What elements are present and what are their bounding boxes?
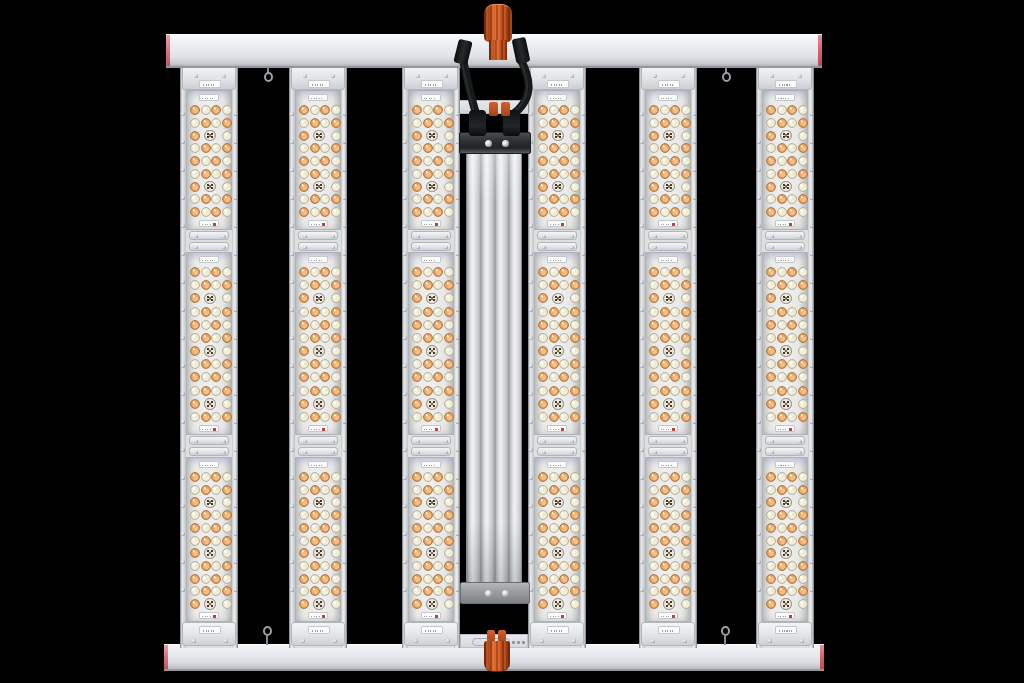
led-bar-segment — [762, 252, 808, 435]
led-diode-amber — [331, 169, 341, 179]
led-diode-white — [299, 169, 309, 179]
led-diode-amber — [570, 485, 580, 495]
led-diode-amber — [766, 574, 776, 584]
rail-screw — [640, 168, 644, 172]
led-diode-white — [222, 346, 232, 356]
rail-screw — [693, 280, 697, 284]
led-diode-amber — [331, 536, 341, 546]
led-diode-white — [310, 207, 320, 217]
led-diode-amber — [222, 359, 232, 369]
rail-screw — [290, 280, 294, 284]
spec-label — [199, 626, 221, 634]
rail-screw — [403, 224, 407, 228]
led-diode-amber — [798, 333, 808, 343]
led-diode-amber — [549, 280, 559, 290]
led-diode-amber — [766, 399, 776, 409]
led-diode-amber — [660, 194, 670, 204]
led-diode-amber — [649, 472, 659, 482]
led-diode-white — [310, 523, 320, 533]
rail-screw — [290, 112, 294, 116]
segment-junction-cap — [765, 242, 805, 251]
led-diode-amber — [211, 320, 221, 330]
rail-screw — [693, 168, 697, 172]
led-diode-white — [670, 536, 680, 546]
rail-screw — [757, 336, 761, 340]
led-diode-white — [681, 523, 691, 533]
screw — [194, 451, 198, 455]
led-diode-amber — [570, 169, 580, 179]
led-diode-white — [538, 307, 548, 317]
spec-label — [775, 425, 795, 432]
rail-screw — [693, 140, 697, 144]
led-diode-white — [538, 359, 548, 369]
screw — [540, 639, 544, 643]
led-diode-white — [412, 536, 422, 546]
hanger-clip-top-neck — [489, 40, 507, 60]
led-diode-amber — [423, 280, 433, 290]
screw — [770, 74, 774, 78]
led-diode-white — [222, 267, 232, 277]
led-diode-amber — [320, 574, 330, 584]
led-diode-white — [766, 386, 776, 396]
led-diode-amber — [201, 118, 211, 128]
led-diode-white — [310, 156, 320, 166]
rail-screw — [693, 476, 697, 480]
led-diode-white — [299, 386, 309, 396]
rail-screw — [640, 560, 644, 564]
led-diode-white — [549, 574, 559, 584]
led-diode-amber — [331, 412, 341, 422]
led-diode-amber — [444, 536, 454, 546]
rail-screw — [529, 196, 533, 200]
rail-screw — [181, 532, 185, 536]
screw — [681, 246, 685, 250]
label-logo — [561, 428, 564, 431]
screw — [570, 74, 574, 78]
screw — [194, 246, 198, 250]
led-diode-white — [670, 333, 680, 343]
spec-label — [421, 461, 441, 468]
screw — [800, 639, 804, 643]
rail-screw — [456, 224, 460, 228]
led-diode-amber — [433, 320, 443, 330]
screw — [222, 74, 226, 78]
led-diode-white — [412, 586, 422, 596]
led-diode-white — [681, 372, 691, 382]
led-diode-white — [299, 307, 309, 317]
led-diode-white — [423, 207, 433, 217]
label-print — [203, 630, 216, 632]
screw — [653, 235, 657, 239]
led-diode-amber — [670, 207, 680, 217]
led-diode-white — [798, 320, 808, 330]
rail-screw — [181, 448, 185, 452]
led-diode-amber — [299, 131, 309, 141]
rail-screw — [757, 252, 761, 256]
rail-screw — [456, 252, 460, 256]
led-diode-white — [681, 105, 691, 115]
spec-label — [308, 94, 328, 101]
led-diode-white — [538, 143, 548, 153]
screw — [542, 451, 546, 455]
led-diode-white — [649, 536, 659, 546]
led-diode-white — [538, 280, 548, 290]
screw — [331, 246, 335, 250]
segment-junction-cap — [765, 447, 805, 456]
led-diode-amber — [777, 536, 787, 546]
label-logo — [322, 428, 325, 431]
led-diode-white — [201, 372, 211, 382]
led-diode-special — [780, 293, 792, 305]
led-diode-white — [190, 412, 200, 422]
led-diode-amber — [798, 359, 808, 369]
led-diode-white — [681, 267, 691, 277]
led-diode-amber — [787, 156, 797, 166]
led-diode-amber — [670, 320, 680, 330]
spec-label — [199, 80, 221, 88]
spec-label — [199, 461, 219, 468]
led-diode-amber — [549, 169, 559, 179]
led-diode-white — [660, 523, 670, 533]
led-diode-amber — [766, 548, 776, 558]
led-diode-white — [681, 346, 691, 356]
rail-screw — [290, 504, 294, 508]
rail-screw — [181, 308, 185, 312]
led-bar-segment — [186, 252, 232, 435]
led-diode-white — [777, 372, 787, 382]
led-diode-white — [320, 143, 330, 153]
led-diode-special — [552, 345, 564, 357]
led-diode-amber — [538, 523, 548, 533]
screw — [570, 451, 574, 455]
led-diode-white — [766, 118, 776, 128]
segment-junction-cap — [648, 231, 688, 240]
rail-screw — [757, 392, 761, 396]
led-diode-white — [211, 561, 221, 571]
led-diode-white — [798, 182, 808, 192]
spec-label — [308, 612, 328, 619]
led-diode-white — [570, 472, 580, 482]
led-diode-amber — [310, 194, 320, 204]
rail-screw — [343, 532, 347, 536]
led-diode-white — [331, 207, 341, 217]
screw — [444, 451, 448, 455]
rail-screw — [529, 308, 533, 312]
led-diode-white — [570, 346, 580, 356]
rail-screw — [640, 504, 644, 508]
screw — [444, 440, 448, 444]
led-diode-white — [570, 207, 580, 217]
led-diode-white — [559, 143, 569, 153]
led-diode-white — [660, 472, 670, 482]
spec-label — [308, 80, 330, 88]
led-diode-amber — [570, 561, 580, 571]
led-diode-white — [412, 359, 422, 369]
led-diode-special — [204, 547, 216, 559]
led-diode-white — [190, 586, 200, 596]
led-diode-special — [780, 497, 792, 509]
led-diode-amber — [423, 143, 433, 153]
rail-screw — [757, 532, 761, 536]
led-diode-amber — [423, 307, 433, 317]
bar-end-cap-bottom — [641, 622, 695, 646]
led-diode-white — [190, 194, 200, 204]
rail-screw — [456, 532, 460, 536]
rail-screw — [582, 280, 586, 284]
led-diode-special — [313, 547, 325, 559]
led-diode-white — [538, 412, 548, 422]
led-diode-white — [798, 293, 808, 303]
segment-junction-cap — [189, 231, 229, 240]
led-diode-amber — [320, 105, 330, 115]
led-diode-amber — [433, 472, 443, 482]
led-diode-white — [320, 485, 330, 495]
led-diode-amber — [190, 182, 200, 192]
led-diode-amber — [570, 536, 580, 546]
led-diode-white — [549, 472, 559, 482]
led-diode-white — [649, 586, 659, 596]
screw — [416, 451, 420, 455]
led-diode-amber — [766, 182, 776, 192]
led-diode-white — [310, 320, 320, 330]
led-diode-white — [538, 485, 548, 495]
rail-screw — [640, 224, 644, 228]
led-diode-amber — [559, 372, 569, 382]
rail-screw — [640, 280, 644, 284]
led-diode-amber — [190, 472, 200, 482]
led-diode-white — [310, 372, 320, 382]
rail-screw — [403, 168, 407, 172]
led-diode-amber — [798, 386, 808, 396]
screw — [331, 440, 335, 444]
led-diode-white — [433, 586, 443, 596]
rail-screw — [343, 476, 347, 480]
led-diode-amber — [798, 412, 808, 422]
led-diode-amber — [222, 536, 232, 546]
led-diode-white — [777, 523, 787, 533]
led-diode-white — [423, 267, 433, 277]
rail-screw — [640, 420, 644, 424]
led-diode-white — [190, 561, 200, 571]
led-diode-amber — [201, 536, 211, 546]
label-print — [779, 630, 792, 632]
spec-label — [199, 220, 219, 227]
led-diode-white — [681, 472, 691, 482]
rail-screw — [529, 448, 533, 452]
rail-screw — [693, 420, 697, 424]
rail-screw — [810, 112, 814, 116]
rail-screw — [403, 308, 407, 312]
led-diode-amber — [222, 280, 232, 290]
rail-screw — [403, 420, 407, 424]
rail-screw — [640, 308, 644, 312]
rail-screw — [757, 140, 761, 144]
led-diode-amber — [549, 510, 559, 520]
led-diode-amber — [190, 346, 200, 356]
led-diode-amber — [559, 156, 569, 166]
led-diode-amber — [798, 118, 808, 128]
led-diode-amber — [299, 599, 309, 609]
led-diode-amber — [670, 156, 680, 166]
led-diode-white — [423, 472, 433, 482]
driver-body — [466, 152, 522, 584]
screw — [222, 440, 226, 444]
led-diode-amber — [798, 561, 808, 571]
led-diode-amber — [444, 485, 454, 495]
spec-label — [308, 220, 328, 227]
rail-screw — [290, 364, 294, 368]
led-diode-amber — [423, 386, 433, 396]
hanger-clip-bottom — [484, 641, 510, 672]
led-diode-white — [299, 118, 309, 128]
led-diode-amber — [190, 131, 200, 141]
led-diode-white — [201, 207, 211, 217]
rail-screw — [640, 196, 644, 200]
frame-end-cap-left — [166, 35, 170, 66]
led-diode-white — [320, 510, 330, 520]
led-diode-white — [433, 307, 443, 317]
led-diode-amber — [310, 510, 320, 520]
led-diode-amber — [190, 523, 200, 533]
screw — [333, 639, 337, 643]
screw — [770, 235, 774, 239]
led-diode-amber — [331, 143, 341, 153]
led-diode-white — [412, 386, 422, 396]
screw — [651, 639, 655, 643]
led-diode-white — [570, 156, 580, 166]
led-diode-special — [204, 345, 216, 357]
led-diode-white — [559, 169, 569, 179]
led-diode-white — [559, 280, 569, 290]
led-diode-white — [412, 169, 422, 179]
rail-screw — [403, 112, 407, 116]
led-diode-white — [681, 574, 691, 584]
led-diode-amber — [222, 386, 232, 396]
segment-junction-cap — [537, 242, 577, 251]
led-diode-amber — [549, 386, 559, 396]
led-diode-white — [412, 307, 422, 317]
led-diode-white — [670, 143, 680, 153]
led-diode-amber — [660, 280, 670, 290]
segment-junction-cap — [648, 242, 688, 251]
segment-junction-cap — [648, 436, 688, 445]
spec-label — [308, 626, 330, 634]
rail-screw — [529, 560, 533, 564]
led-diode-amber — [570, 510, 580, 520]
led-diode-amber — [299, 267, 309, 277]
rail-screw — [810, 504, 814, 508]
led-diode-white — [444, 574, 454, 584]
led-diode-white — [787, 561, 797, 571]
rail-screw — [403, 560, 407, 564]
led-diode-white — [433, 169, 443, 179]
led-diode-amber — [412, 182, 422, 192]
label-logo — [213, 615, 216, 618]
rail-screw — [456, 392, 460, 396]
screw — [303, 451, 307, 455]
led-diode-amber — [299, 472, 309, 482]
led-diode-white — [444, 293, 454, 303]
led-diode-white — [787, 510, 797, 520]
screw — [768, 639, 772, 643]
led-diode-amber — [559, 105, 569, 115]
led-diode-amber — [310, 333, 320, 343]
led-diode-white — [211, 194, 221, 204]
led-diode-amber — [538, 346, 548, 356]
led-diode-white — [299, 586, 309, 596]
segment-junction-cap — [411, 436, 451, 445]
led-diode-amber — [299, 156, 309, 166]
led-diode-amber — [444, 386, 454, 396]
led-diode-amber — [538, 320, 548, 330]
rail-screw — [343, 504, 347, 508]
led-diode-white — [660, 372, 670, 382]
led-diode-amber — [211, 523, 221, 533]
led-diode-white — [412, 333, 422, 343]
rail-screw — [181, 336, 185, 340]
rail-screw — [640, 364, 644, 368]
led-diode-amber — [433, 156, 443, 166]
led-diode-amber — [766, 293, 776, 303]
led-diode-amber — [649, 293, 659, 303]
led-diode-amber — [201, 169, 211, 179]
segment-junction-cap — [298, 231, 338, 240]
led-diode-amber — [320, 267, 330, 277]
rail-screw — [343, 252, 347, 256]
led-diode-white — [649, 280, 659, 290]
label-print — [778, 260, 789, 262]
spec-label — [547, 612, 567, 619]
rail-screw — [181, 560, 185, 564]
label-print — [778, 465, 789, 467]
led-diode-amber — [681, 386, 691, 396]
rail-screw — [343, 168, 347, 172]
led-diode-white — [559, 386, 569, 396]
screw — [301, 639, 305, 643]
led-diode-white — [211, 280, 221, 290]
led-diode-amber — [538, 472, 548, 482]
led-diode-amber — [310, 143, 320, 153]
led-diode-amber — [310, 536, 320, 546]
screw — [570, 235, 574, 239]
rail-screw — [403, 448, 407, 452]
led-diode-amber — [310, 485, 320, 495]
led-diode-amber — [299, 497, 309, 507]
led-diode-white — [559, 307, 569, 317]
rail-screw — [343, 392, 347, 396]
led-diode-white — [201, 105, 211, 115]
screw — [653, 74, 657, 78]
led-diode-white — [444, 267, 454, 277]
led-diode-white — [538, 333, 548, 343]
led-diode-amber — [649, 207, 659, 217]
screw — [798, 451, 802, 455]
rail-screw — [640, 140, 644, 144]
rail-screw — [582, 168, 586, 172]
led-bar-segment — [408, 457, 454, 622]
led-diode-amber — [299, 207, 309, 217]
led-diode-amber — [787, 267, 797, 277]
led-diode-white — [222, 574, 232, 584]
rail-screw — [234, 140, 238, 144]
rail-screw — [456, 420, 460, 424]
led-diode-amber — [444, 586, 454, 596]
led-diode-special — [552, 598, 564, 610]
led-diode-amber — [412, 293, 422, 303]
rail-screw — [529, 336, 533, 340]
spec-label — [547, 461, 567, 468]
screw — [770, 440, 774, 444]
